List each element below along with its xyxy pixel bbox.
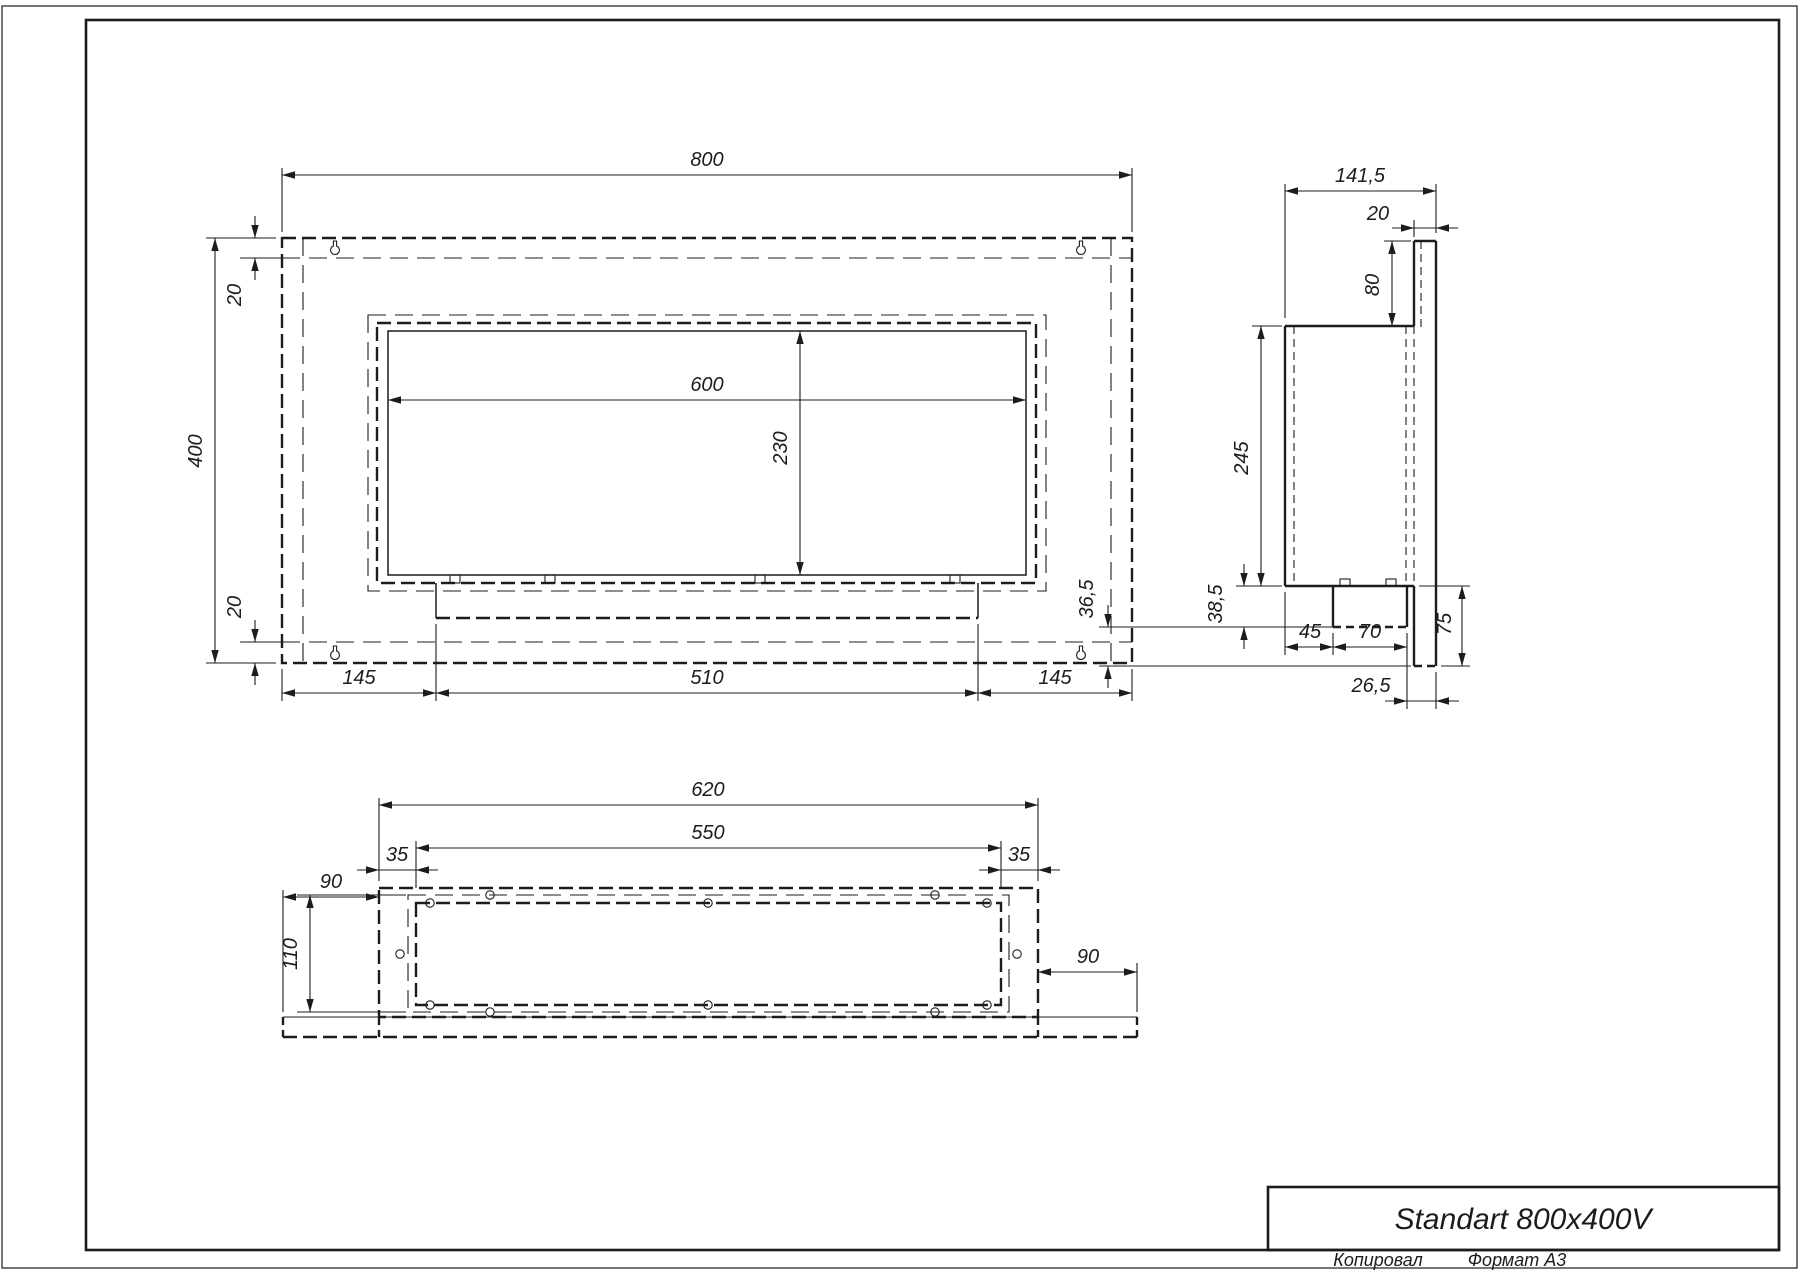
side-view-outline xyxy=(1285,241,1436,666)
side-view-dimensions: 141,5 20 80 245 38,5 36 xyxy=(1076,165,1470,709)
drawing-sheet: Standart 800x400V Копировал Формат А3 xyxy=(0,0,1800,1273)
bottom-view-outline xyxy=(283,888,1137,1037)
dim-side-back-panel-thickness: 20 xyxy=(1366,203,1389,225)
outer-border xyxy=(2,6,1797,1268)
bottom-view: 620 550 35 35 90 90 xyxy=(280,779,1137,1037)
technical-drawing: Standart 800x400V Копировал Формат А3 xyxy=(0,0,1800,1273)
dim-bottom-opening-width: 550 xyxy=(691,822,724,844)
dim-bottom-opening-depth: 110 xyxy=(280,938,302,970)
keyhole-icon xyxy=(1077,646,1086,659)
dim-bottom-plate-right-extension: 90 xyxy=(1077,946,1099,968)
dim-front-left-offset: 145 xyxy=(342,667,376,689)
footer-copied-by: Копировал xyxy=(1333,1250,1423,1270)
dim-bottom-body-width: 620 xyxy=(691,779,724,801)
dim-front-bottom-inset: 20 xyxy=(224,596,246,619)
dim-front-right-offset: 145 xyxy=(1038,667,1072,689)
dim-bottom-left-inset: 35 xyxy=(386,844,409,866)
dim-front-overall-height: 400 xyxy=(185,434,207,467)
dim-front-opening-width: 600 xyxy=(690,374,723,396)
dim-side-lower-back-height: 75 xyxy=(1434,612,1456,635)
dim-side-back-clearance: 26,5 xyxy=(1351,675,1392,697)
front-view-box xyxy=(368,315,1046,618)
title-block: Standart 800x400V Копировал Формат А3 xyxy=(1268,1187,1779,1270)
dim-front-top-inset: 20 xyxy=(224,284,246,307)
dim-side-body-height: 245 xyxy=(1231,440,1253,475)
dim-side-top-offset: 80 xyxy=(1362,274,1384,296)
dim-side-overall-depth: 141,5 xyxy=(1335,165,1386,187)
side-view: 141,5 20 80 245 38,5 36 xyxy=(1076,165,1470,709)
keyhole-icon xyxy=(331,646,340,659)
dim-bottom-right-inset: 35 xyxy=(1008,844,1031,866)
sheet-frame xyxy=(2,6,1797,1268)
dim-side-rear-lower-height: 36,5 xyxy=(1076,579,1098,619)
keyhole-icon xyxy=(331,241,340,254)
dim-side-front-lower-height: 38,5 xyxy=(1205,584,1227,624)
front-view-outline xyxy=(282,238,1132,663)
front-view: 800 400 20 20 600 230 xyxy=(185,149,1132,701)
dim-front-overall-width: 800 xyxy=(690,149,723,171)
dim-front-opening-height: 230 xyxy=(770,431,792,465)
keyhole-icon xyxy=(1077,241,1086,254)
dim-side-burner-front-offset: 45 xyxy=(1299,621,1322,643)
inner-frame xyxy=(86,20,1779,1250)
drawing-title: Standart 800x400V xyxy=(1395,1203,1655,1236)
dim-bottom-plate-left-extension: 90 xyxy=(320,871,342,893)
dim-front-burner-width: 510 xyxy=(690,667,723,689)
dim-side-burner-depth: 70 xyxy=(1359,621,1381,643)
footer-format: Формат А3 xyxy=(1468,1250,1567,1270)
